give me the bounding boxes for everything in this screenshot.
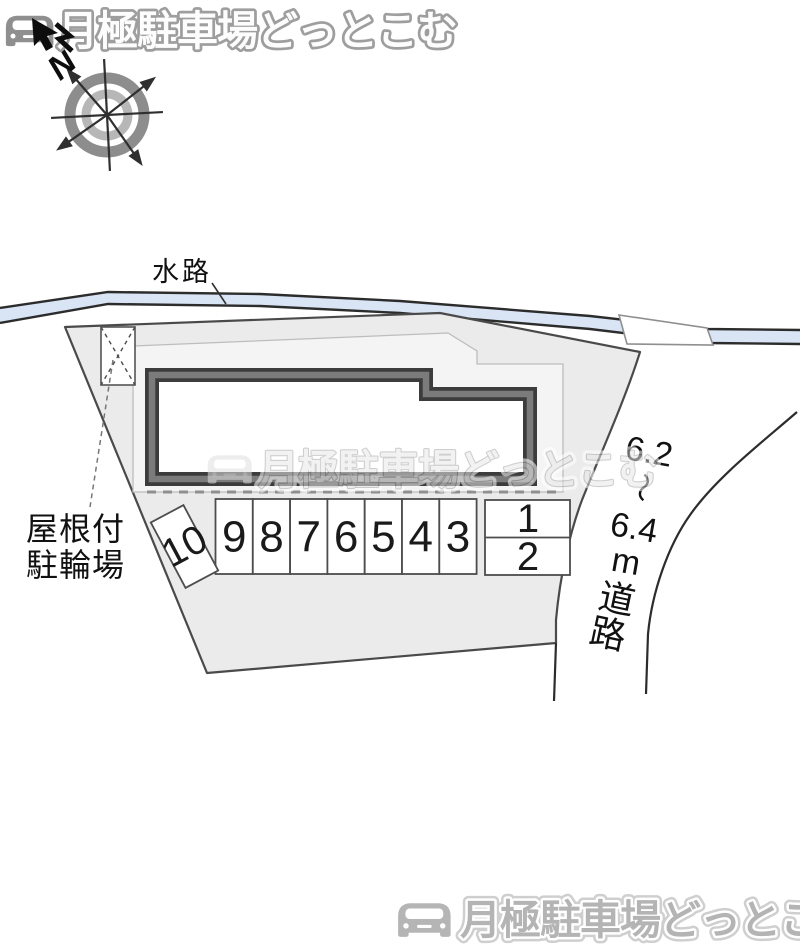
footer-logo: 月極駐車場どっとこむ 月極駐車場どっとこむ	[398, 897, 800, 943]
svg-text:8: 8	[259, 513, 283, 562]
svg-text:9: 9	[222, 513, 246, 562]
parking-map-page: 水路 屋根付 駐輪場 9 8 7	[0, 0, 800, 944]
svg-text:2: 2	[517, 535, 539, 579]
compass-rose: N	[40, 42, 166, 174]
svg-text:月極駐車場どっとこむ: 月極駐車場どっとこむ	[57, 8, 457, 54]
road-left-edge	[554, 643, 556, 701]
svg-text:路: 路	[586, 610, 630, 658]
site-map-svg: 水路 屋根付 駐輪場 9 8 7	[0, 0, 800, 944]
svg-text:7: 7	[297, 513, 321, 562]
svg-text:月極駐車場どっとこむ: 月極駐車場どっとこむ	[460, 897, 800, 943]
header-logo: 月極駐車場どっとこむ	[6, 8, 457, 54]
waterway-bridge	[619, 315, 713, 345]
svg-text:6: 6	[334, 513, 358, 562]
svg-text:3: 3	[446, 513, 470, 562]
svg-text:4: 4	[408, 513, 432, 562]
waterway-label: 水路	[152, 257, 212, 287]
svg-text:駐輪場: 駐輪場	[26, 547, 125, 583]
svg-text:月極駐車場どっとこむ: 月極駐車場どっとこむ	[258, 447, 658, 493]
center-watermark: 月極駐車場どっとこむ 月極駐車場どっとこむ	[208, 447, 658, 493]
car-icon	[398, 903, 451, 937]
bike-shed-label: 屋根付 駐輪場	[26, 511, 125, 583]
bike-shed-box	[101, 327, 135, 385]
svg-text:5: 5	[371, 513, 395, 562]
svg-text:屋根付: 屋根付	[26, 511, 125, 547]
